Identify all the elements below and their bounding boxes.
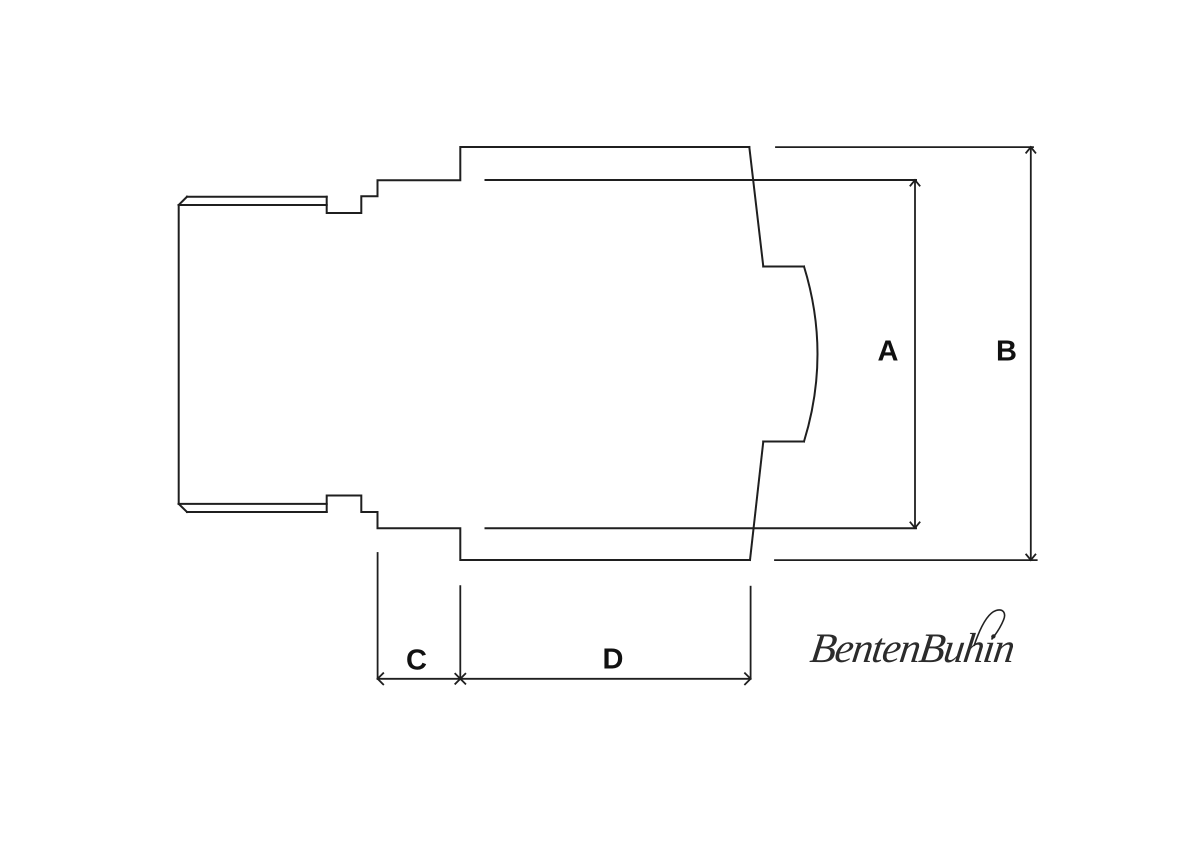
svg-text:B: B	[996, 335, 1017, 367]
svg-text:A: A	[878, 336, 899, 368]
svg-text:BentenBuhin: BentenBuhin	[808, 625, 1019, 672]
svg-text:D: D	[603, 644, 624, 676]
svg-text:C: C	[406, 644, 427, 676]
